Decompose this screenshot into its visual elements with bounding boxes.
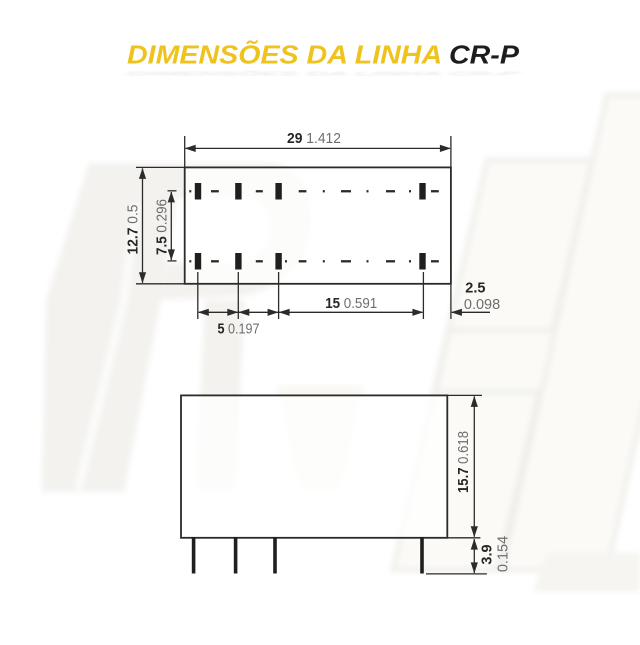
svg-text:DIMENSÕES DA LINHA CR-P: DIMENSÕES DA LINHA CR-P [127,70,519,77]
svg-text:3.9: 3.9 [480,544,496,564]
svg-text:29 1.412: 29 1.412 [287,131,341,147]
svg-text:7.5 0.296: 7.5 0.296 [154,199,170,255]
svg-text:12.7 0.5: 12.7 0.5 [126,205,142,255]
svg-text:5 0.197: 5 0.197 [218,322,260,338]
svg-text:DIMENSÕES DA LINHA CR-P: DIMENSÕES DA LINHA CR-P [127,40,520,69]
svg-text:15.7 0.618: 15.7 0.618 [456,431,472,493]
svg-text:15 0.591: 15 0.591 [325,296,377,312]
svg-text:0.154: 0.154 [496,536,512,572]
svg-text:0.098: 0.098 [464,297,500,313]
svg-text:2.5: 2.5 [465,280,485,296]
